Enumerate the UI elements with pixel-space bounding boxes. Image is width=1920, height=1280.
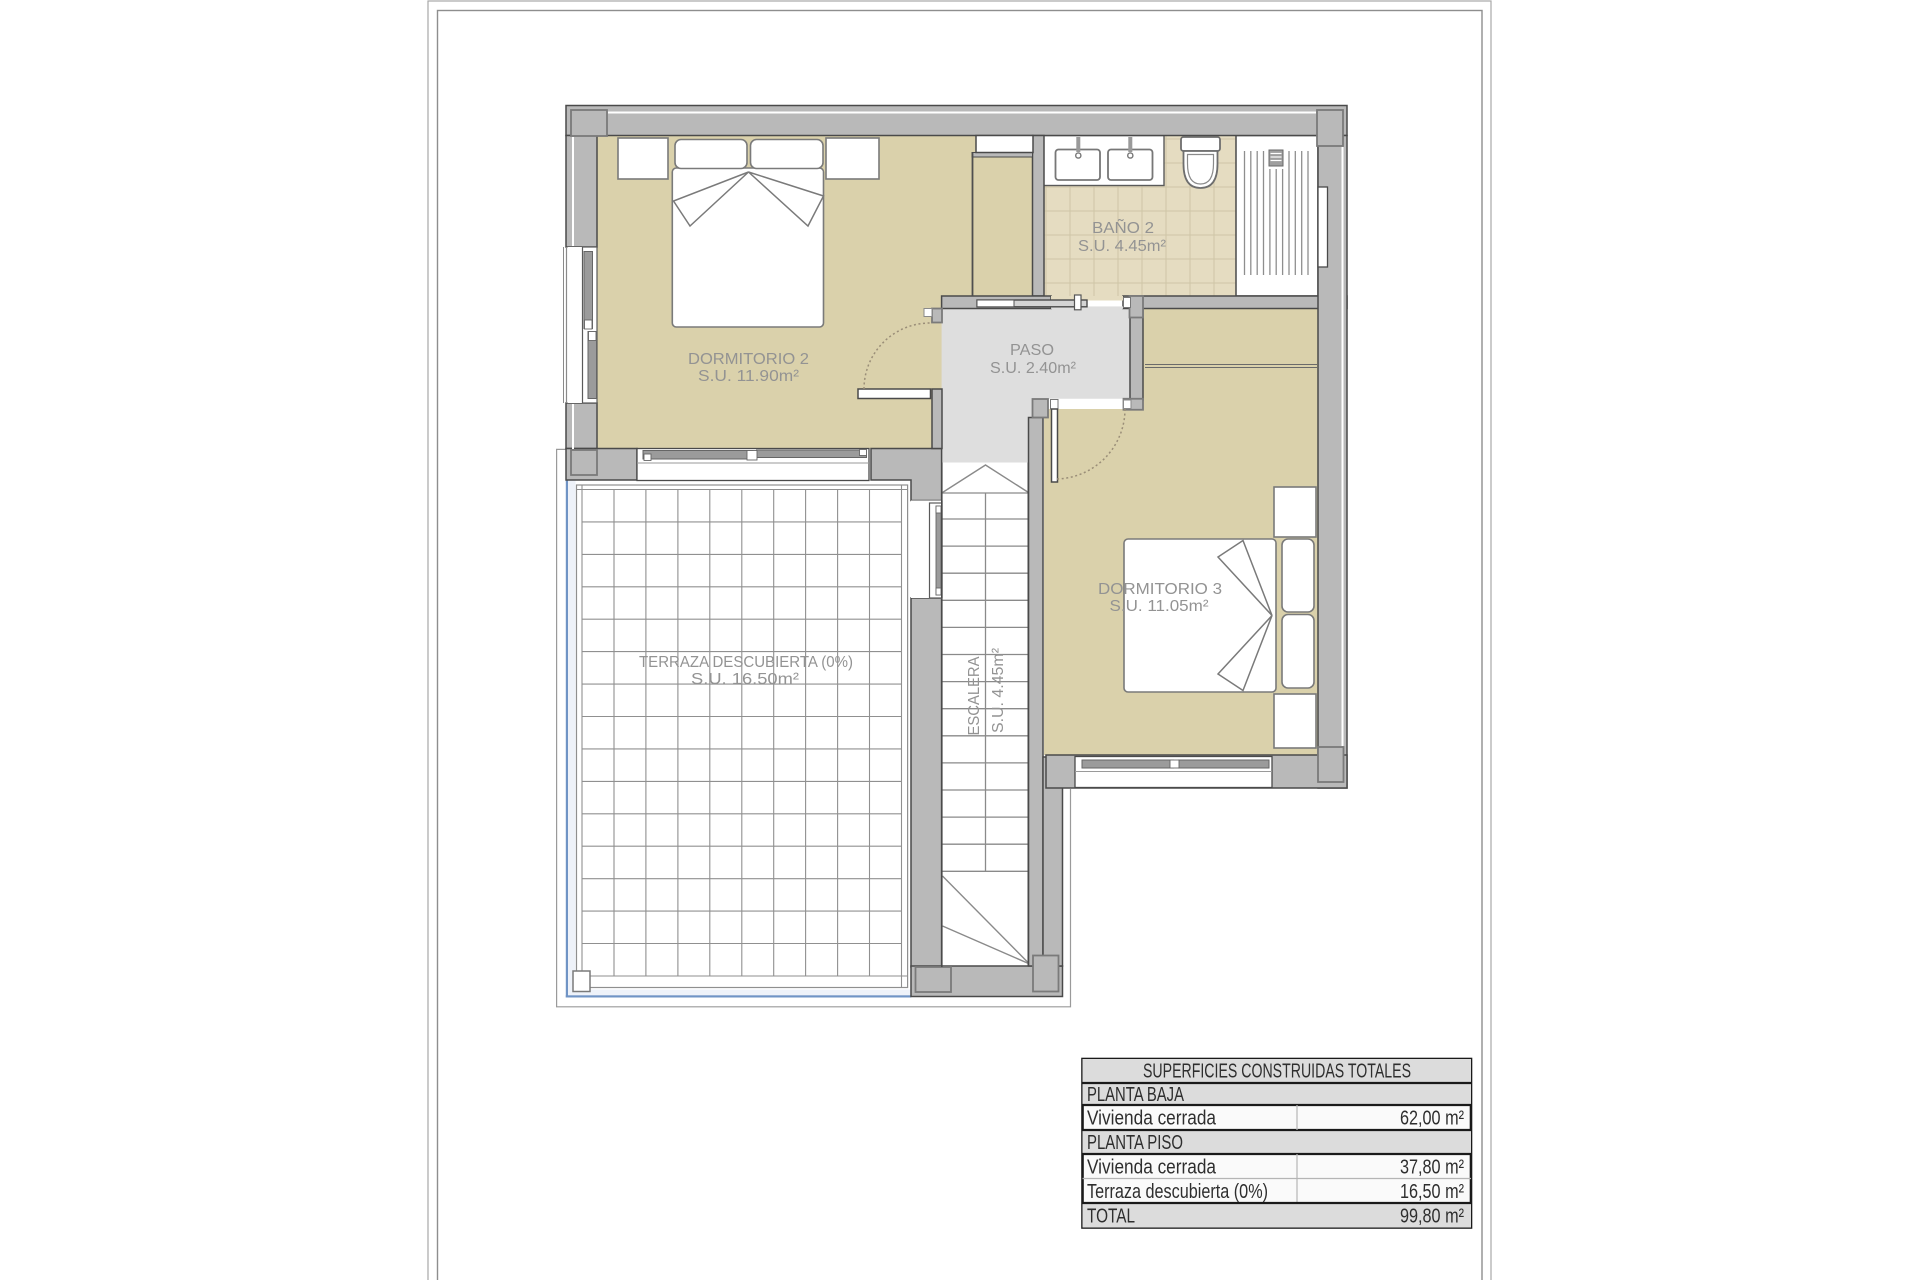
svg-text:Vivienda cerrada: Vivienda cerrada [1087, 1108, 1217, 1130]
svg-text:PLANTA PISO: PLANTA PISO [1087, 1132, 1183, 1154]
svg-text:BAÑO 2: BAÑO 2 [1092, 217, 1154, 237]
svg-text:PLANTA BAJA: PLANTA BAJA [1087, 1084, 1184, 1106]
svg-text:S.U. 4.45m²: S.U. 4.45m² [1078, 238, 1167, 255]
svg-text:DORMITORIO 3: DORMITORIO 3 [1098, 581, 1222, 598]
svg-text:ESCALERA: ESCALERA [966, 656, 983, 735]
svg-text:S.U. 4.45m²: S.U. 4.45m² [990, 647, 1007, 733]
svg-text:SUPERFICIES CONSTRUIDAS TOTALE: SUPERFICIES CONSTRUIDAS TOTALES [1143, 1061, 1411, 1083]
svg-text:S.U. 11.90m²: S.U. 11.90m² [698, 368, 800, 385]
svg-text:99,80 m²: 99,80 m² [1400, 1206, 1464, 1228]
svg-text:TERRAZA DESCUBIERTA (0%): TERRAZA DESCUBIERTA (0%) [639, 654, 853, 671]
svg-text:S.U. 16.50m²: S.U. 16.50m² [691, 671, 800, 688]
svg-text:TOTAL: TOTAL [1087, 1206, 1135, 1228]
svg-text:S.U. 2.40m²: S.U. 2.40m² [990, 360, 1077, 377]
svg-text:PASO: PASO [1010, 342, 1054, 359]
svg-text:37,80 m²: 37,80 m² [1400, 1157, 1464, 1179]
svg-text:Terraza descubierta (0%): Terraza descubierta (0%) [1087, 1181, 1268, 1203]
svg-text:62,00 m²: 62,00 m² [1400, 1108, 1464, 1130]
svg-text:DORMITORIO 2: DORMITORIO 2 [688, 351, 809, 368]
svg-text:Vivienda cerrada: Vivienda cerrada [1087, 1157, 1217, 1179]
svg-text:16,50 m²: 16,50 m² [1400, 1181, 1464, 1203]
svg-text:S.U. 11.05m²: S.U. 11.05m² [1110, 598, 1210, 615]
